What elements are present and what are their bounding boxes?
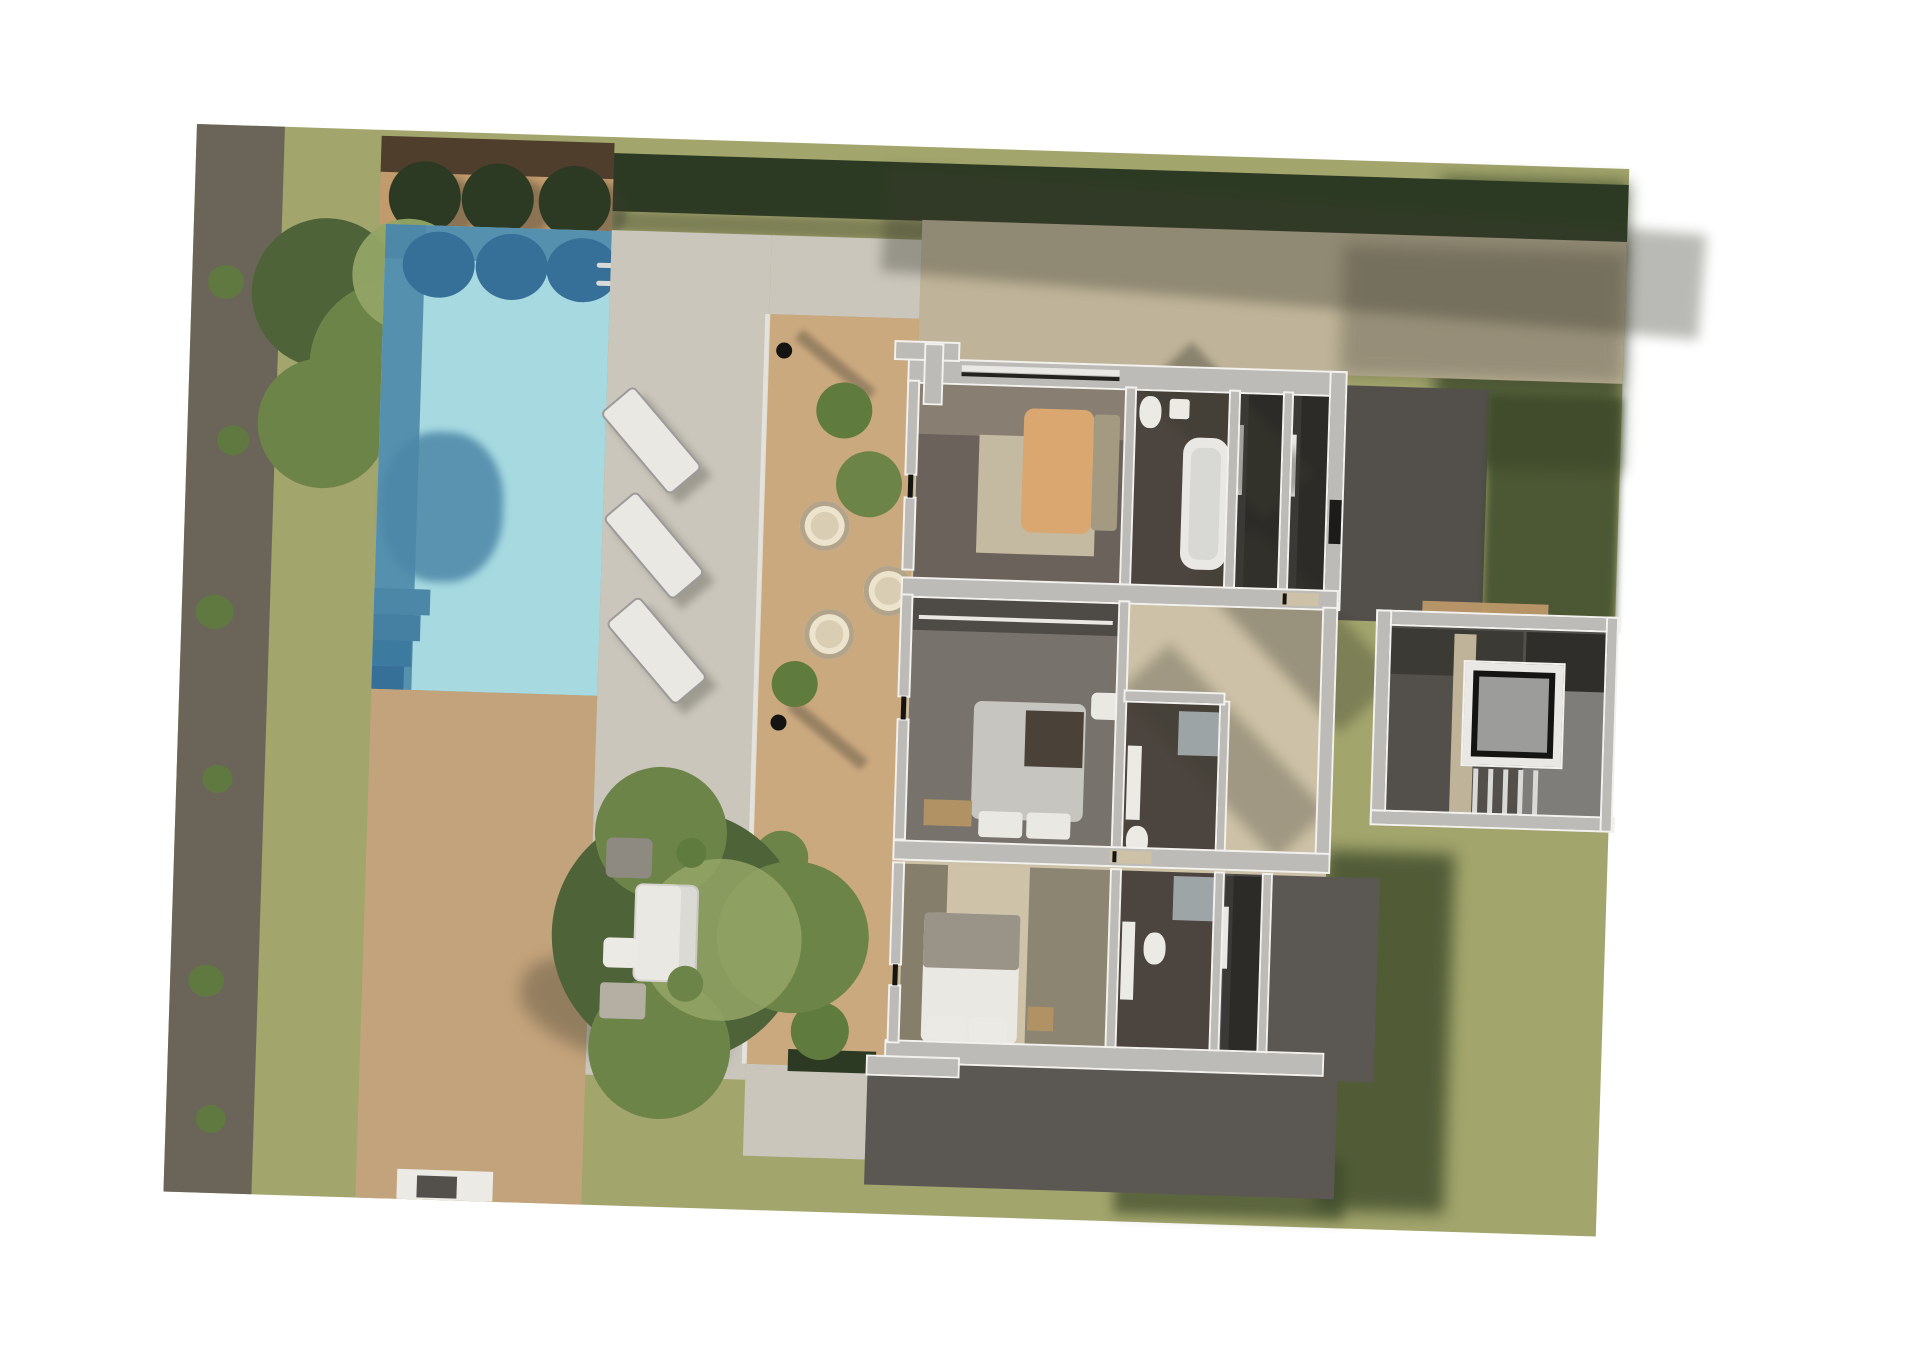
bed2-pillow-1 — [978, 811, 1023, 838]
page-background — [0, 0, 1920, 1356]
terrace-shadow-right — [1340, 244, 1627, 384]
bathroom3-counter — [1120, 921, 1135, 999]
outdoor-kitchen-grill — [416, 1175, 457, 1198]
glass-wall-6 — [889, 986, 900, 1041]
toilet3 — [1143, 932, 1166, 965]
bed3-blanket — [923, 912, 1021, 970]
bathtub1-inner — [1188, 447, 1222, 560]
glass-pane-1 — [908, 475, 914, 498]
bed1-pillows — [1091, 414, 1121, 531]
pool-step-2 — [373, 614, 421, 641]
sink1 — [1169, 399, 1190, 420]
lounge-coffee-table — [599, 982, 646, 1019]
bed3-pillow-2 — [969, 1017, 1008, 1042]
pool-palm-shadow — [379, 430, 506, 584]
glass-pane-2 — [901, 696, 907, 719]
wall-south-jog — [868, 1057, 958, 1077]
pool-step-4 — [371, 666, 404, 690]
door-leaf-1 — [1282, 593, 1286, 604]
elevator-cab — [1477, 677, 1549, 753]
door-leaf-2 — [1112, 851, 1116, 862]
shower3-glass — [1172, 876, 1215, 921]
shower2-glass — [1178, 711, 1221, 756]
porch-paving — [1336, 385, 1489, 624]
pool-step-1 — [374, 588, 431, 616]
paving-east — [1264, 875, 1380, 1082]
lounge-pouf — [603, 937, 638, 968]
entry-door-gap — [1328, 500, 1341, 544]
paving-south — [864, 1061, 1338, 1200]
pool-step-3 — [372, 640, 412, 667]
porch-grass-shadow — [1482, 395, 1622, 629]
bed2-pillow-2 — [1026, 812, 1071, 839]
bed2-throw — [1024, 710, 1084, 768]
lounge-armchair — [606, 837, 653, 878]
bedroom2-desk — [923, 799, 972, 826]
bathroom2-counter — [1126, 746, 1142, 820]
wall-spur-vertical — [925, 345, 943, 403]
toilet1 — [1139, 396, 1162, 429]
site-plan — [163, 124, 1629, 1236]
bed3-pillow-1 — [927, 1015, 966, 1040]
bed3-side-table — [1027, 1007, 1054, 1032]
bed1-duvet — [1021, 408, 1095, 534]
patio-stone-south — [743, 1064, 868, 1160]
glass-pane-3 — [892, 964, 898, 985]
